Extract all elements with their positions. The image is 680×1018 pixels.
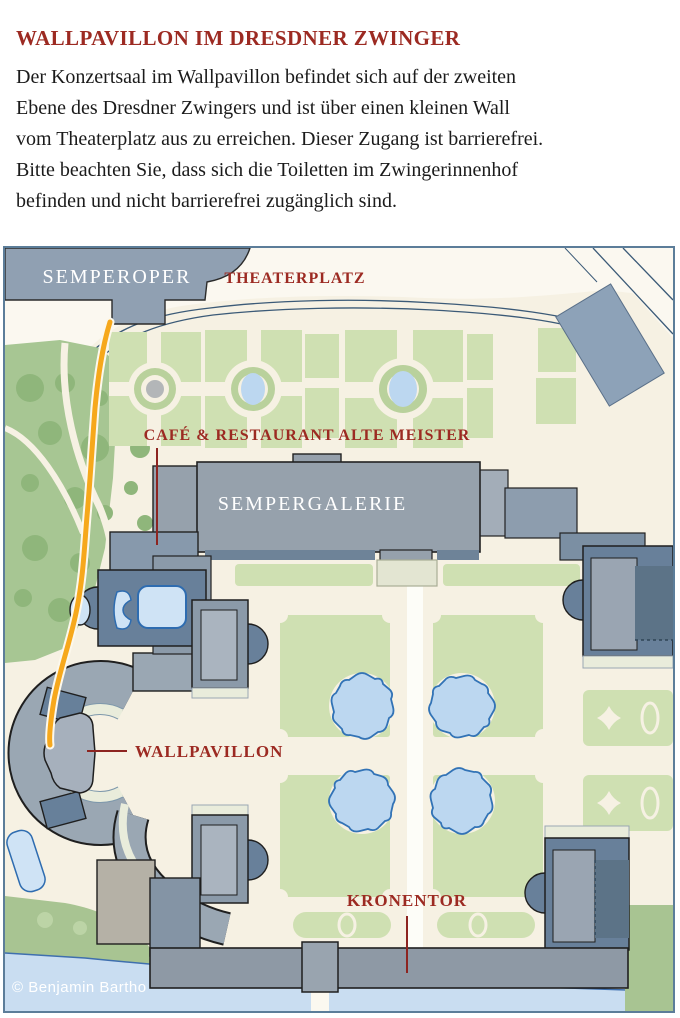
wallpavillon-label: WALLPAVILLON [135, 742, 283, 762]
gallery-lawn [235, 564, 373, 586]
cafe-label: CAFÉ & RESTAURANT ALTE MEISTER [103, 427, 511, 445]
fountain-pond [241, 373, 265, 405]
page-title: WALLPAVILLON IM DRESDNER ZWINGER [16, 26, 666, 51]
southwest-building [150, 878, 200, 956]
paragraph-line: vom Theaterplatz aus zu erreichen. Diese… [16, 124, 672, 155]
intro-paragraph: Der Konzertsaal im Wallpavillon befindet… [16, 62, 672, 217]
zwinger-map: SEMPEROPER THEATERPLATZ CAFÉ & RESTAURAN… [3, 246, 675, 1013]
semperoper-label: SEMPEROPER [27, 266, 207, 289]
theaterplatz-label: THEATERPLATZ [215, 270, 375, 288]
sempergalerie-label: SEMPERGALERIE [195, 493, 430, 516]
kronentor-label: KRONENTOR [337, 891, 477, 911]
paragraph-line: Bitte beachten Sie, dass sich die Toilet… [16, 155, 672, 186]
copyright-credit: © Benjamin Bartho [12, 979, 147, 996]
pool [138, 586, 186, 628]
south-wall [150, 948, 628, 988]
kronentor-building [302, 942, 338, 992]
fountain-pond [389, 371, 417, 407]
southwest-annex-building [97, 860, 155, 944]
paragraph-line: Ebene des Dresdner Zwingers und ist über… [16, 93, 672, 124]
page: { "page": { "title": "WALLPAVILLON IM DR… [0, 0, 680, 1018]
gallery-entrance [377, 560, 437, 586]
gallery-lawn [443, 564, 580, 586]
paragraph-line: Der Konzertsaal im Wallpavillon befindet… [16, 62, 672, 93]
corner-green [625, 905, 673, 1011]
paragraph-line: befinden und nicht barrierefrei zugängli… [16, 186, 672, 217]
